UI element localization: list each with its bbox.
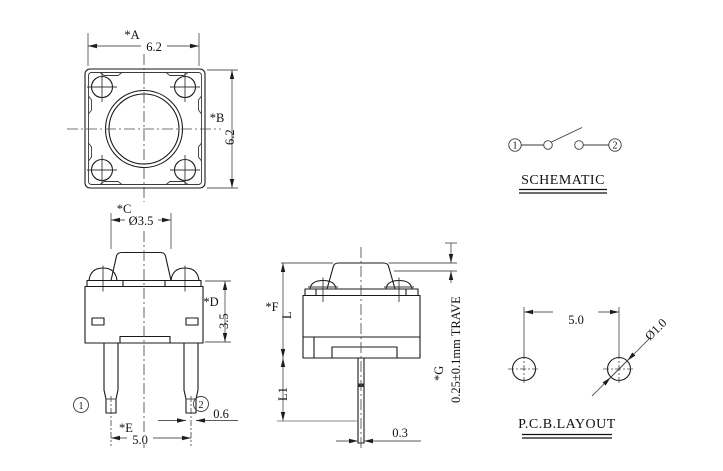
dim-b-value: 6.2 xyxy=(223,129,237,145)
dimension-a: *A 6.2 xyxy=(88,28,199,66)
plunger xyxy=(111,253,171,281)
dimension-f: *F L xyxy=(265,263,333,358)
schematic-contact xyxy=(544,141,553,150)
schematic-pin1-number: 1 xyxy=(513,141,518,152)
pin2-number: 2 xyxy=(199,400,204,411)
dimension-d: *D 3.5 xyxy=(203,281,231,342)
corner-rivets xyxy=(87,72,200,185)
dimension-hole-diameter: Ø1.0 xyxy=(592,316,670,396)
pin1-number: 1 xyxy=(79,401,84,412)
travel-value: 0.25±0.1mm TRAVE xyxy=(449,296,463,403)
pcb-layout: 5.0 Ø1.0 P.C.B.LAYOUT xyxy=(508,307,670,438)
side-view: *F L L1 *G 0.25±0.1mm TRAVE xyxy=(265,243,463,449)
hole-diameter-value: Ø1.0 xyxy=(642,316,669,343)
left-lead xyxy=(104,343,118,413)
dim-e-value: 5.0 xyxy=(132,433,148,447)
top-view: *A 6.2 *B 6.2 xyxy=(67,28,238,202)
dim-d-label: *D xyxy=(203,295,218,309)
right-lead xyxy=(184,343,198,413)
datasheet-drawing-page: *A 6.2 *B 6.2 xyxy=(0,0,723,471)
technical-drawing: *A 6.2 *B 6.2 xyxy=(0,0,723,471)
dimension-b: *B 6.2 xyxy=(207,70,238,188)
side-slot xyxy=(186,318,198,325)
dimension-l1: L1 xyxy=(276,358,357,421)
dim-g-label: *G xyxy=(432,366,446,381)
dim-e-label: *E xyxy=(119,421,133,435)
dim-c-value: Ø3.5 xyxy=(129,214,154,228)
dim-b-label: *B xyxy=(210,111,225,125)
dim-a-value: 6.2 xyxy=(146,40,162,54)
dimension-e: *E 5.0 xyxy=(111,421,191,447)
schematic-title: SCHEMATIC xyxy=(521,173,605,188)
lead-thickness-value: 0.3 xyxy=(392,426,408,440)
dim-f-label: *F xyxy=(265,300,278,314)
schematic: 1 2 SCHEMATIC xyxy=(509,128,621,194)
dim-d-value: 3.5 xyxy=(217,313,231,329)
dim-f-value: L xyxy=(280,311,294,319)
schematic-contact xyxy=(575,141,584,150)
pitch-value: 5.0 xyxy=(568,313,584,327)
dim-l1-value: L1 xyxy=(276,387,290,401)
switch-body-side xyxy=(303,296,420,359)
dimension-travel: *G 0.25±0.1mm TRAVE xyxy=(389,243,464,403)
pcb-layout-title: P.C.B.LAYOUT xyxy=(518,417,616,432)
front-view: *C Ø3.5 *D 3.5 1 2 0.6 xyxy=(74,202,239,448)
schematic-lever xyxy=(552,128,583,143)
lead-width-value: 0.6 xyxy=(213,407,229,421)
dimension-pitch: 5.0 xyxy=(524,307,619,357)
dim-a-label: *A xyxy=(124,28,139,42)
side-slot xyxy=(92,318,104,325)
dimension-c: *C Ø3.5 xyxy=(111,202,171,249)
schematic-pin2-number: 2 xyxy=(613,141,618,152)
pin1-balloon: 1 xyxy=(74,398,89,413)
dimension-lead-thickness: 0.3 xyxy=(336,426,421,443)
cover-strip-side xyxy=(305,289,418,296)
